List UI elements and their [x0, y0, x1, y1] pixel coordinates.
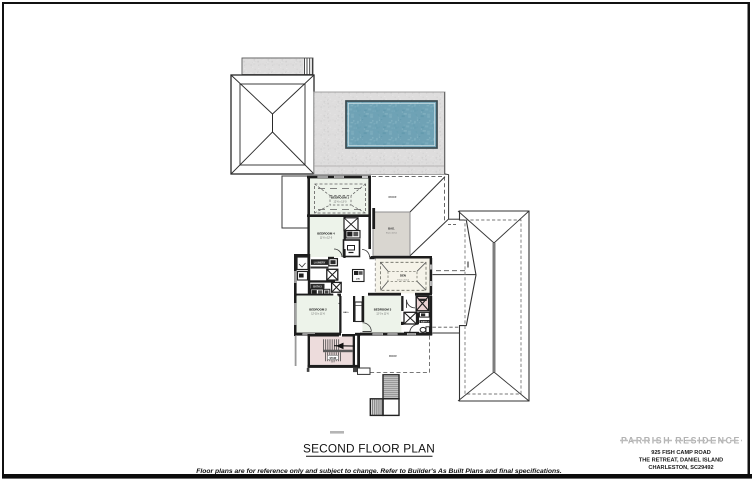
svg-text:BAG.: BAG.: [388, 227, 395, 231]
svg-text:BEDROOM 1: BEDROOM 1: [331, 195, 350, 199]
svg-text:BATH 2: BATH 2: [421, 321, 430, 324]
svg-text:13 R: 13 R: [331, 362, 336, 364]
svg-text:ROOF: ROOF: [388, 195, 396, 199]
svg-text:BATH 3: BATH 3: [313, 286, 322, 289]
svg-text:ROOF: ROOF: [389, 354, 397, 358]
svg-text:11'-0 x 12'-0: 11'-0 x 12'-0: [320, 238, 333, 240]
svg-text:12'-0 x 11'-6: 12'-0 x 11'-6: [376, 314, 389, 316]
svg-text:CHARLESTON, SC29492: CHARLESTON, SC29492: [648, 465, 713, 471]
svg-text:SECOND FLOOR PLAN: SECOND FLOOR PLAN: [303, 442, 435, 456]
svg-text:DEN: DEN: [400, 274, 406, 278]
svg-text:LAUNDRY: LAUNDRY: [314, 262, 326, 265]
svg-text:BEDROOM 2: BEDROOM 2: [309, 307, 327, 311]
svg-text:LIN.: LIN.: [356, 279, 361, 281]
svg-text:8'-0 x 10'-0: 8'-0 x 10'-0: [386, 232, 397, 234]
svg-text:12'-6 x 13'-0: 12'-6 x 13'-0: [333, 201, 347, 204]
svg-text:925 FISH CAMP ROAD: 925 FISH CAMP ROAD: [651, 450, 711, 456]
svg-text:Floor plans are for reference: Floor plans are for reference only and s…: [196, 468, 562, 475]
svg-text:13'-0 x 10'-0: 13'-0 x 10'-0: [397, 280, 410, 282]
svg-text:BEDROOM 4: BEDROOM 4: [317, 231, 335, 235]
svg-text:STAIR: STAIR: [330, 357, 337, 360]
svg-text:BEDROOM 3: BEDROOM 3: [374, 307, 392, 311]
svg-text:HALL: HALL: [343, 311, 349, 314]
svg-text:THE RETREAT, DANIEL ISLAND: THE RETREAT, DANIEL ISLAND: [639, 457, 723, 463]
svg-text:12'-10 x 11'-6: 12'-10 x 11'-6: [311, 314, 325, 316]
